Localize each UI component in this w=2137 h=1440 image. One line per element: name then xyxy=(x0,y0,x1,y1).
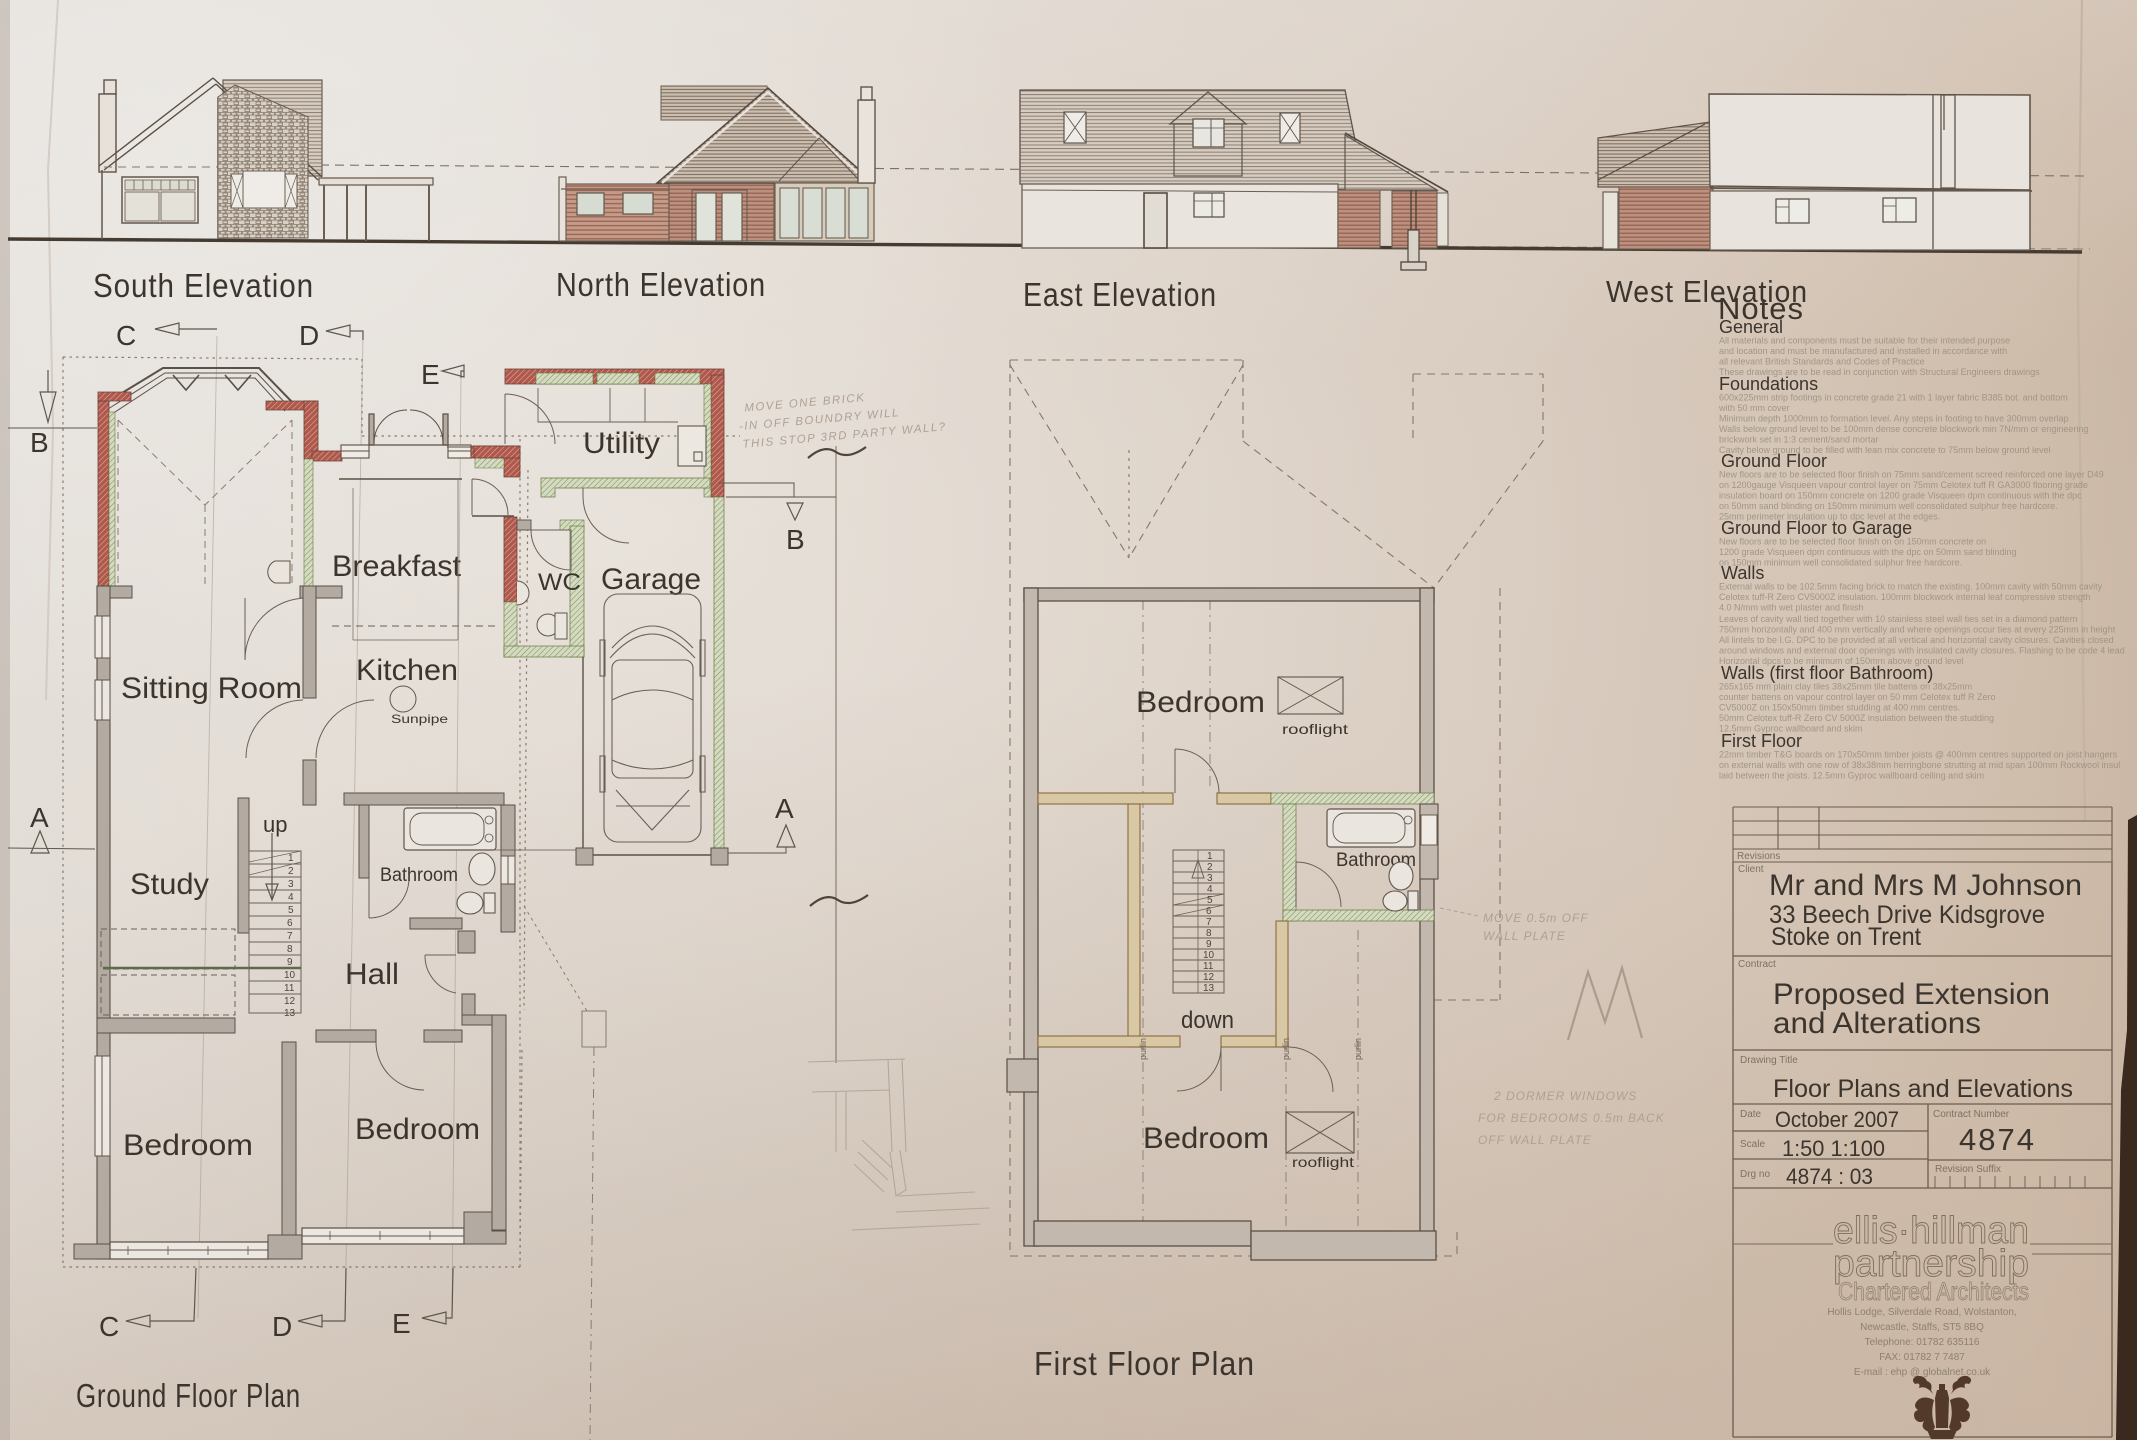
svg-text:Ground Floor to Garage: Ground Floor to Garage xyxy=(1721,518,1912,538)
svg-text:Telephone: 01782 635116: Telephone: 01782 635116 xyxy=(1865,1337,1980,1348)
svg-text:purlin: purlin xyxy=(1281,1038,1291,1060)
svg-text:4: 4 xyxy=(288,892,294,903)
svg-text:Walls below ground level to be: Walls below ground level to be 100mm den… xyxy=(1719,424,2088,434)
svg-text:8: 8 xyxy=(287,944,293,955)
svg-text:Sunpipe: Sunpipe xyxy=(391,712,448,726)
svg-text:5: 5 xyxy=(1207,895,1213,906)
svg-text:4: 4 xyxy=(1207,884,1213,895)
svg-text:600x225mm strip footings in co: 600x225mm strip footings in concrete gra… xyxy=(1719,393,2068,403)
svg-text:4.0 N/mm with wet plaster and: 4.0 N/mm with wet plaster and finish xyxy=(1719,603,1864,613)
svg-text:Drawing Title: Drawing Title xyxy=(1740,1055,1798,1066)
svg-text:Celotex tuff-R Zero CV5000Z in: Celotex tuff-R Zero CV5000Z insulation. … xyxy=(1719,592,2091,602)
svg-text:and location and must be manuf: and location and must be manufactured an… xyxy=(1719,346,2007,356)
svg-text:4874 : 03: 4874 : 03 xyxy=(1786,1164,1873,1189)
svg-text:10: 10 xyxy=(1203,950,1215,961)
svg-text:10: 10 xyxy=(284,970,296,981)
svg-text:E: E xyxy=(392,1308,411,1339)
svg-text:1: 1 xyxy=(1207,851,1213,862)
svg-text:on external walls with one row: on external walls with one row of 38x38m… xyxy=(1719,760,2120,770)
svg-text:5: 5 xyxy=(288,905,294,916)
svg-text:rooflight: rooflight xyxy=(1292,1154,1354,1170)
svg-text:purlin: purlin xyxy=(1353,1038,1363,1060)
svg-text:12: 12 xyxy=(1203,972,1215,983)
svg-text:FOR BEDROOMS 0.5m BACK: FOR BEDROOMS 0.5m BACK xyxy=(1478,1111,1665,1125)
svg-text:D: D xyxy=(299,320,319,351)
svg-text:First Floor Plan: First Floor Plan xyxy=(1034,1345,1255,1382)
svg-text:3: 3 xyxy=(288,879,294,890)
svg-text:Scale: Scale xyxy=(1740,1139,1765,1150)
svg-text:purlin: purlin xyxy=(1138,1038,1148,1060)
svg-text:Leaves of cavity wall tied tog: Leaves of cavity wall tied together with… xyxy=(1719,614,2078,624)
svg-text:9: 9 xyxy=(287,957,293,968)
svg-text:750mm horizontally and 400 mm: 750mm horizontally and 400 mm vertically… xyxy=(1719,625,2116,635)
svg-text:all relevant British Standards: all relevant British Standards and Codes… xyxy=(1719,357,1925,367)
svg-text:WALL PLATE: WALL PLATE xyxy=(1483,929,1566,943)
svg-text:and Alterations: and Alterations xyxy=(1773,1007,1981,1040)
svg-text:Date: Date xyxy=(1740,1109,1762,1120)
svg-text:1:50 1:100: 1:50 1:100 xyxy=(1782,1136,1885,1161)
svg-text:External walls to be 102.5mm f: External walls to be 102.5mm facing bric… xyxy=(1719,582,2103,592)
svg-text:1: 1 xyxy=(288,853,294,864)
svg-text:up: up xyxy=(263,812,287,837)
svg-text:Study: Study xyxy=(130,868,209,901)
svg-text:Bedroom: Bedroom xyxy=(1143,1122,1269,1155)
svg-text:6: 6 xyxy=(287,918,293,929)
svg-text:1200 grade Visqueen dpm contin: 1200 grade Visqueen dpm continuous with … xyxy=(1719,547,2017,557)
svg-text:50mm Celotex tuff-R Zero CV 50: 50mm Celotex tuff-R Zero CV 5000Z insula… xyxy=(1719,713,1994,723)
svg-text:6: 6 xyxy=(1206,906,1212,917)
svg-text:MOVE 0.5m OFF: MOVE 0.5m OFF xyxy=(1483,911,1589,925)
svg-text:New floors are to be selected: New floors are to be selected floor fini… xyxy=(1719,537,1986,547)
svg-text:Bedroom: Bedroom xyxy=(1136,686,1265,719)
svg-text:insulation board on 150mm conc: insulation board on 150mm concrete on 12… xyxy=(1719,491,2082,501)
svg-text:CV5000Z on 150x50mm timber stu: CV5000Z on 150x50mm timber studding at 4… xyxy=(1719,703,1960,713)
svg-text:Hollis Lodge, Silverdale Ro: Hollis Lodge, Silverdale Road, Wolstanto… xyxy=(1827,1307,2016,1318)
svg-text:Kitchen: Kitchen xyxy=(356,654,458,687)
svg-text:Sitting Room: Sitting Room xyxy=(121,672,302,705)
svg-text:laid between the joists. 12.5m: laid between the joists. 12.5mm Gyproc w… xyxy=(1719,771,1984,781)
svg-text:2: 2 xyxy=(288,866,294,877)
svg-text:13: 13 xyxy=(1203,983,1215,994)
svg-text:12: 12 xyxy=(284,996,296,1007)
svg-text:October 2007: October 2007 xyxy=(1775,1107,1899,1132)
svg-text:FAX: 01782 7 7487: FAX: 01782 7 7487 xyxy=(1879,1352,1965,1363)
svg-text:265x165 mm plain clay tiles 38: 265x165 mm plain clay tiles 38x25mm tile… xyxy=(1719,682,1972,692)
svg-text:East Elevation: East Elevation xyxy=(1023,276,1217,313)
svg-text:D: D xyxy=(272,1311,292,1342)
svg-text:C: C xyxy=(99,1311,119,1342)
svg-text:Bedroom: Bedroom xyxy=(123,1129,253,1162)
svg-text:3: 3 xyxy=(1207,873,1213,884)
svg-text:Garage: Garage xyxy=(601,563,701,596)
svg-text:Chartered Architects: Chartered Architects xyxy=(1838,1278,2029,1306)
svg-text:Contract Number: Contract Number xyxy=(1933,1109,2010,1120)
svg-text:Revision Suffix: Revision Suffix xyxy=(1935,1164,2001,1175)
svg-text:A: A xyxy=(775,793,794,824)
svg-text:Client: Client xyxy=(1738,864,1764,875)
svg-text:North Elevation: North Elevation xyxy=(556,266,766,303)
svg-text:7: 7 xyxy=(287,931,293,942)
svg-text:rooflight: rooflight xyxy=(1282,721,1348,737)
svg-text:11: 11 xyxy=(1203,961,1214,972)
svg-text:on 1200gauge Visqueen vapour c: on 1200gauge Visqueen vapour control lay… xyxy=(1719,480,2088,490)
svg-text:Newcastle, Staffs, ST5 8BQ: Newcastle, Staffs, ST5 8BQ xyxy=(1860,1322,1984,1333)
svg-text:All lintels to be I.G. DPC to: All lintels to be I.G. DPC to be provide… xyxy=(1719,635,2114,645)
svg-text:Breakfast: Breakfast xyxy=(332,550,462,583)
svg-text:Ground Floor: Ground Floor xyxy=(1721,451,1827,471)
svg-text:9: 9 xyxy=(1206,939,1212,950)
svg-text:22mm timber T&G boards on 170x: 22mm timber T&G boards on 170x50mm timbe… xyxy=(1719,750,2118,760)
svg-text:General: General xyxy=(1719,317,1783,337)
svg-text:First Floor: First Floor xyxy=(1721,731,1802,751)
svg-text:B: B xyxy=(30,427,49,458)
svg-text:counter battens on vapour cont: counter battens on vapour control layer … xyxy=(1719,692,1995,702)
svg-text:Hall: Hall xyxy=(345,958,399,991)
svg-text:New floors are to be selected: New floors are to be selected floor fini… xyxy=(1719,470,2104,480)
svg-text:Foundations: Foundations xyxy=(1719,374,1818,394)
svg-text:2 DORMER WINDOWS: 2 DORMER WINDOWS xyxy=(1493,1089,1637,1103)
svg-text:Ground Floor Plan: Ground Floor Plan xyxy=(76,1377,301,1414)
svg-text:Mr and Mrs M Johnson: Mr and Mrs M Johnson xyxy=(1769,869,2082,902)
svg-text:8: 8 xyxy=(1206,928,1212,939)
svg-text:Drg no: Drg no xyxy=(1740,1169,1770,1180)
svg-text:Contract: Contract xyxy=(1738,959,1776,970)
svg-text:WC: WC xyxy=(538,569,581,596)
svg-text:South Elevation: South Elevation xyxy=(93,267,314,304)
svg-text:brickwork set in 1:3 cement/sa: brickwork set in 1:3 cement/sand mortar xyxy=(1719,435,1879,445)
svg-text:Bedroom: Bedroom xyxy=(355,1113,480,1146)
svg-text:OFF WALL PLATE: OFF WALL PLATE xyxy=(1478,1133,1592,1147)
svg-text:down: down xyxy=(1181,1007,1234,1034)
svg-text:Walls (first floor Bathroom): Walls (first floor Bathroom) xyxy=(1721,663,1933,683)
svg-text:around windows and external do: around windows and external door opening… xyxy=(1719,646,2125,656)
svg-text:E: E xyxy=(421,359,440,390)
svg-text:11: 11 xyxy=(284,983,295,994)
svg-text:All materials and components m: All materials and components must be sui… xyxy=(1719,336,2010,346)
svg-text:A: A xyxy=(30,802,49,833)
svg-text:7: 7 xyxy=(1206,917,1212,928)
svg-text:with 50 mm cover: with 50 mm cover xyxy=(1718,403,1790,413)
svg-text:Revisions: Revisions xyxy=(1737,851,1780,862)
svg-text:13: 13 xyxy=(284,1008,296,1019)
svg-text:B: B xyxy=(786,524,805,555)
svg-text:4874: 4874 xyxy=(1959,1122,2036,1157)
svg-text:Walls: Walls xyxy=(1721,563,1764,583)
svg-text:2: 2 xyxy=(1207,862,1213,873)
svg-text:Utility: Utility xyxy=(583,427,660,460)
svg-text:Bathroom: Bathroom xyxy=(380,865,458,886)
svg-text:on 50mm sand blinding on 150mm: on 50mm sand blinding on 150mm minimum w… xyxy=(1719,501,2058,511)
svg-text:C: C xyxy=(116,320,136,351)
svg-text:Stoke on Trent: Stoke on Trent xyxy=(1771,923,1921,951)
svg-text:Floor Plans and Elevations: Floor Plans and Elevations xyxy=(1773,1075,2073,1103)
svg-text:E-mail : ehp @ globalnet.co.: E-mail : ehp @ globalnet.co.uk xyxy=(1854,1367,1991,1378)
svg-text:Minimum depth 1000mm to format: Minimum depth 1000mm to formation level.… xyxy=(1719,414,2069,424)
